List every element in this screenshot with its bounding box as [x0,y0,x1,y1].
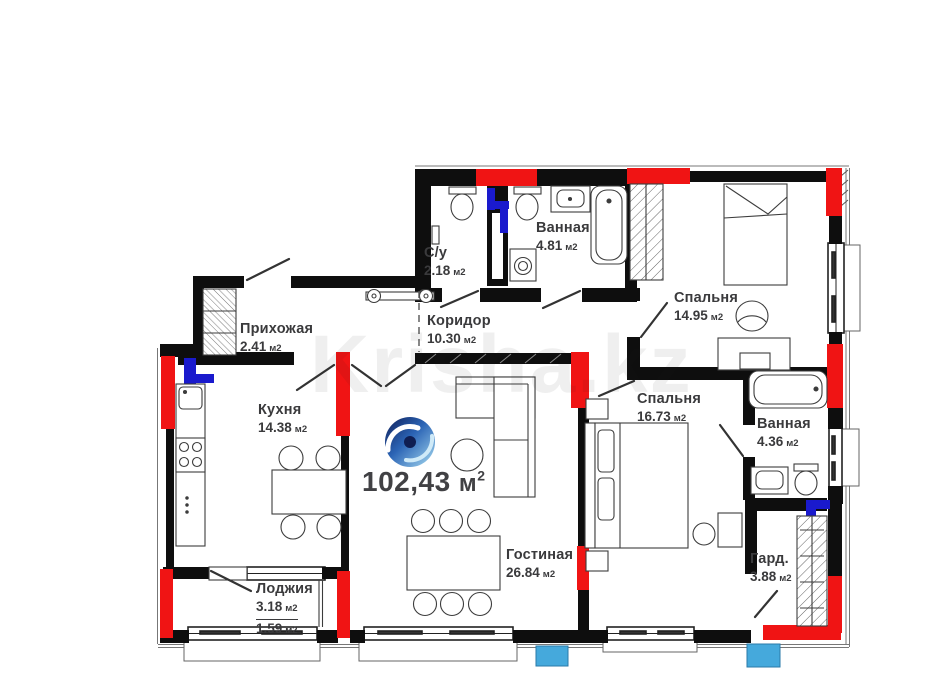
room-label-lodzhiya: Лоджия 3.18м2 1.59м2 [256,580,313,640]
room-label-vannaya2: Ванная 4.36м2 [757,415,811,453]
garderob-shelving [797,516,827,626]
room-label-su: С/у 2.18м2 [424,244,466,282]
room-label-spalnya1: Спальня 14.95м2 [674,289,738,327]
total-area-label: 102,43 м2 [362,466,485,498]
room-label-gostinaya: Гостиная 26.84м2 [506,546,573,584]
site-watermark: Krisha.kz [310,318,690,412]
room-label-prihozhaya: Прихожая 2.41м2 [240,320,313,358]
hallway-wardrobe [203,289,236,355]
corridor-slider [366,290,434,303]
corner-hatch [841,170,848,206]
room-label-kuhnya: Кухня 14.38м2 [258,401,307,439]
room-label-koridor: Коридор 10.30м2 [427,312,491,350]
room-label-garderob: Гард. 3.88м2 [750,550,792,588]
room-label-vannaya1: Ванная 4.81м2 [536,219,590,257]
room-label-spalnya2: Спальня 16.73м2 [637,390,701,428]
developer-logo [385,417,435,467]
floorplan-page: Krisha.kz С/у 2.18м2 Ванная 4.81м2 Спаль… [0,0,938,685]
